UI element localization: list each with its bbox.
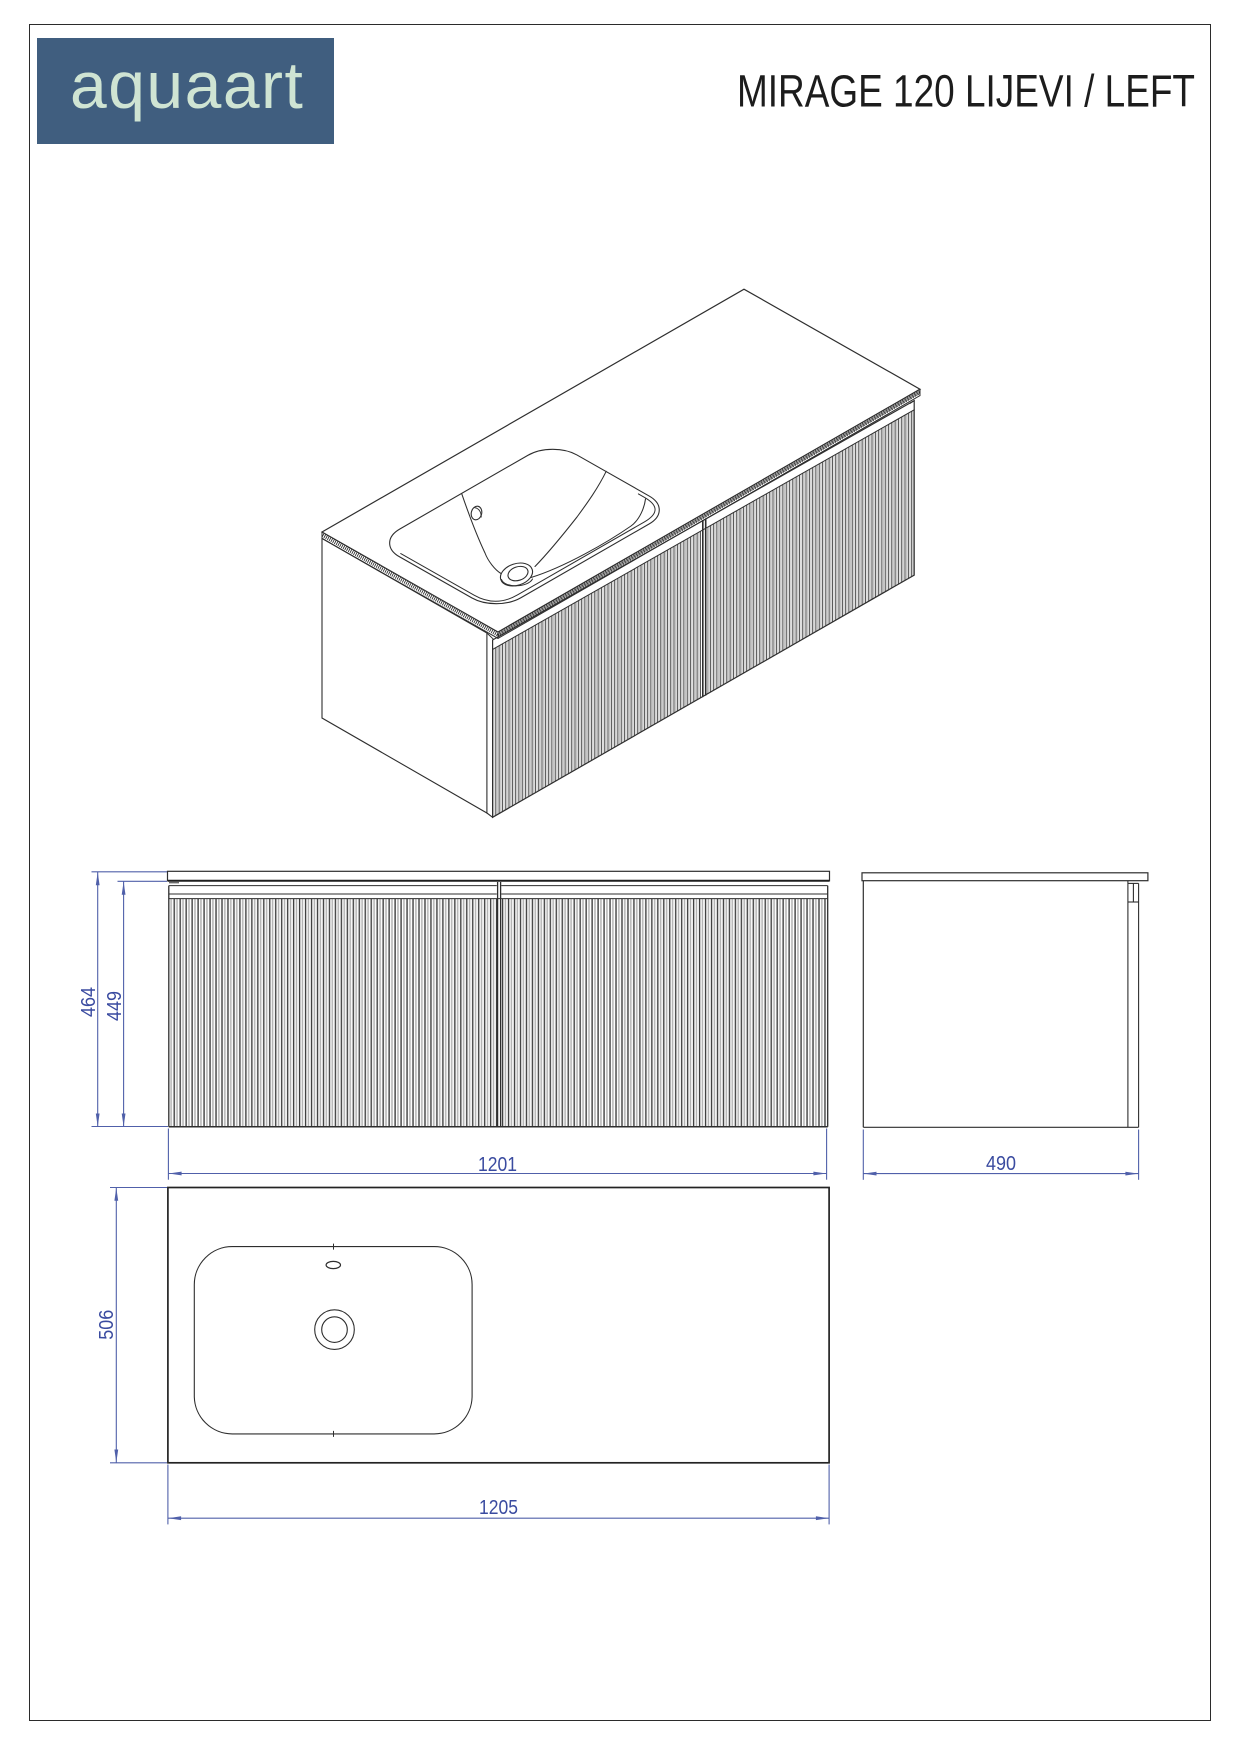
svg-text:506: 506	[95, 1310, 118, 1340]
svg-text:1201: 1201	[478, 1153, 517, 1176]
svg-text:464: 464	[77, 987, 100, 1017]
svg-text:1205: 1205	[479, 1496, 518, 1519]
svg-text:MIRAGE 120 LIJEVI / LEFT: MIRAGE 120 LIJEVI / LEFT	[737, 66, 1195, 117]
svg-text:449: 449	[103, 991, 126, 1021]
svg-text:490: 490	[986, 1152, 1016, 1175]
